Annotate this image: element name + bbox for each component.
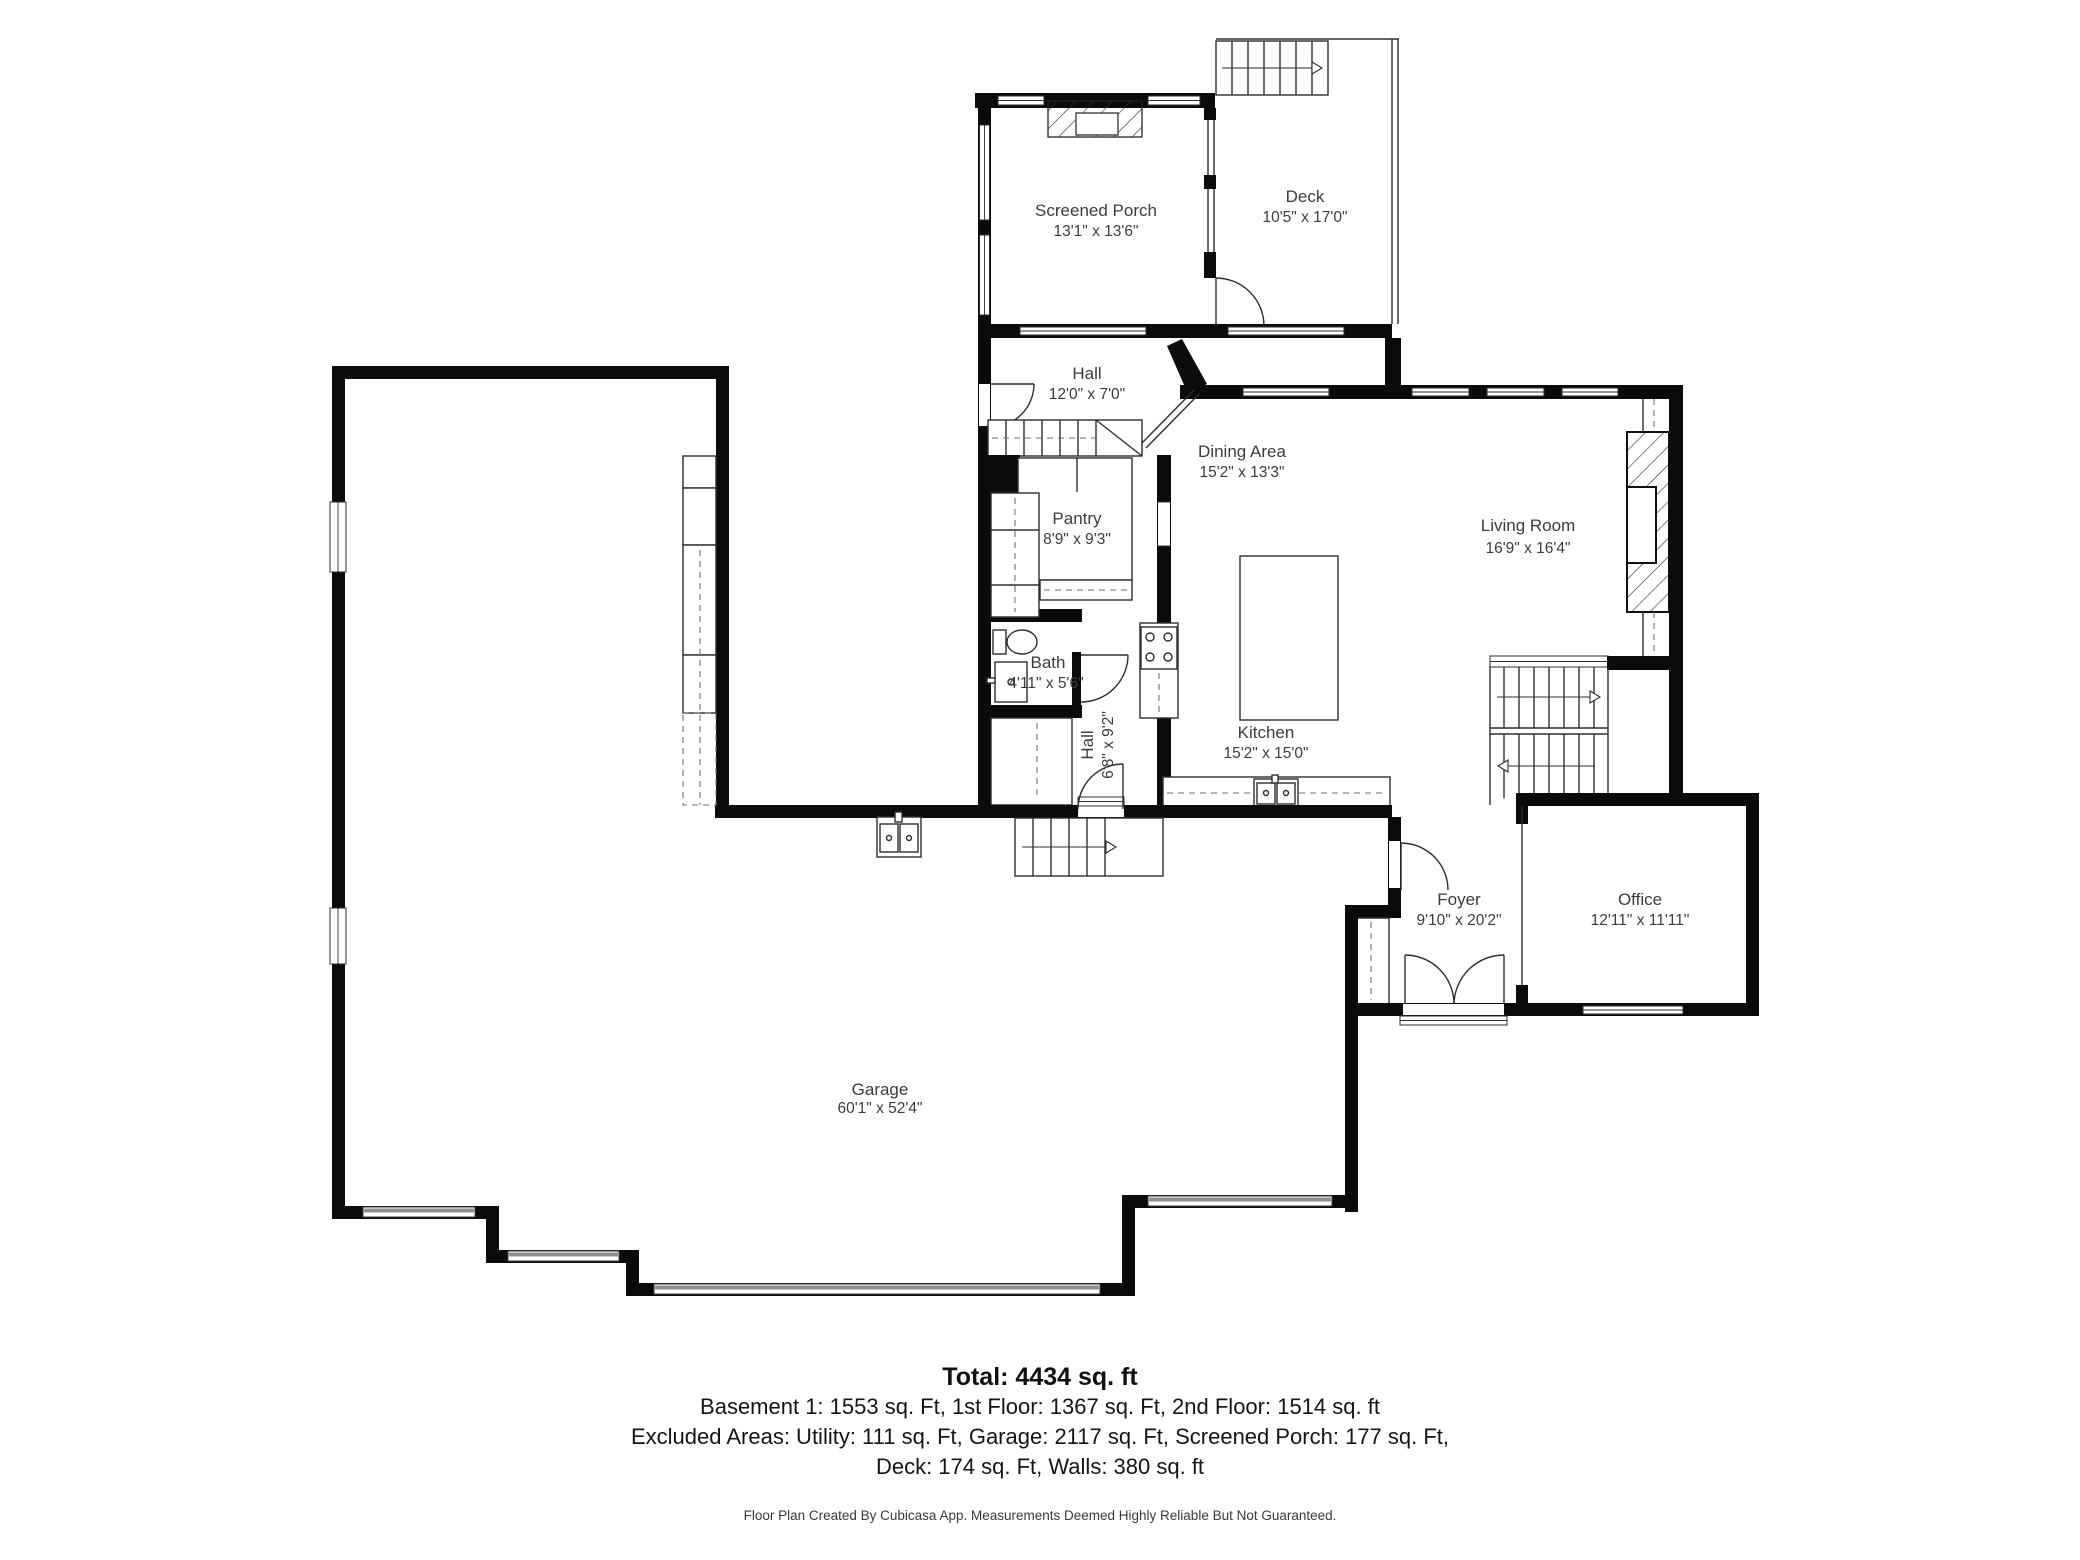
room-dims-garage: 60'1" x 52'4"	[837, 1100, 922, 1117]
room-dims-dining-area: 15'2" x 13'3"	[1199, 464, 1284, 481]
deck-door	[1216, 278, 1264, 326]
excluded-areas-text-line2: Deck: 174 sq. Ft, Walls: 380 sq. ft	[0, 1452, 2080, 1482]
deck-walls	[1216, 39, 1399, 326]
garage-stairs	[1015, 818, 1163, 876]
room-label-dining-area: Dining Area	[1198, 442, 1286, 461]
floor-plan-page: Screened Porch 13'1" x 13'6" Deck 10'5" …	[0, 0, 2080, 1560]
room-dims-deck: 10'5" x 17'0"	[1262, 209, 1347, 226]
garage-walls	[330, 366, 1392, 1296]
garage-door-3	[654, 1284, 1100, 1294]
room-label-pantry: Pantry	[1052, 509, 1102, 528]
kitchen-sink-icon	[1254, 775, 1298, 808]
foyer-closet	[1358, 918, 1389, 1003]
room-label-office: Office	[1618, 890, 1662, 909]
garage-door-1	[363, 1207, 475, 1217]
room-label-garage: Garage	[852, 1080, 909, 1099]
entry-double-door	[1405, 955, 1504, 1004]
total-area-text: Total: 4434 sq. ft	[0, 1362, 2080, 1392]
excluded-areas-text-line1: Excluded Areas: Utility: 111 sq. Ft, Gar…	[0, 1422, 2080, 1452]
toilet-icon	[993, 630, 1037, 654]
stove-icon	[1141, 627, 1177, 669]
room-label-hall-lower: Hall	[1078, 730, 1097, 759]
bath-door	[1081, 655, 1128, 702]
room-dims-office: 12'11" x 11'11"	[1591, 912, 1690, 929]
room-dims-hall-lower: 6'8" x 9'2"	[1100, 711, 1117, 779]
room-dims-screened-porch: 13'1" x 13'6"	[1053, 223, 1138, 240]
room-label-deck: Deck	[1286, 187, 1325, 206]
garage-door-2	[508, 1251, 619, 1261]
room-label-kitchen: Kitchen	[1238, 723, 1295, 742]
foyer-door	[1401, 843, 1448, 890]
room-dims-foyer: 9'10" x 20'2"	[1416, 912, 1501, 929]
area-summary: Total: 4434 sq. ft Basement 1: 1553 sq. …	[0, 1362, 2080, 1482]
room-dims-bath: 4'11" x 5'6"	[1008, 675, 1083, 692]
disclaimer-text: Floor Plan Created By Cubicasa App. Meas…	[0, 1508, 2080, 1523]
room-label-hall-upper: Hall	[1072, 364, 1101, 383]
garage-cabinets	[683, 456, 716, 805]
kitchen-fixtures	[1140, 556, 1390, 809]
deck-stairs	[1216, 41, 1328, 95]
room-dims-hall-upper: 12'0" x 7'0"	[1049, 386, 1125, 403]
room-dims-kitchen: 15'2" x 15'0"	[1223, 745, 1308, 762]
room-label-screened-porch: Screened Porch	[1035, 201, 1157, 220]
room-label-bath: Bath	[1031, 653, 1066, 672]
kitchen-island	[1240, 556, 1338, 720]
garage-door-4	[1148, 1196, 1332, 1206]
hall-stairs	[988, 420, 1142, 456]
garage-utility-sink-icon	[877, 812, 921, 857]
hall-closet	[991, 718, 1072, 805]
room-dims-pantry: 8'9" x 9'3"	[1043, 531, 1111, 548]
office-foyer-walls	[1345, 793, 1759, 1212]
floor-plan-canvas: Screened Porch 13'1" x 13'6" Deck 10'5" …	[0, 0, 2080, 1560]
diagonal-wall	[1167, 339, 1207, 394]
room-label-foyer: Foyer	[1437, 890, 1481, 909]
main-exterior-walls	[1141, 338, 1683, 805]
main-staircase	[1490, 656, 1683, 805]
room-dims-living-room: 16'9" x 16'4"	[1485, 540, 1570, 557]
floor-areas-text: Basement 1: 1553 sq. Ft, 1st Floor: 1367…	[0, 1392, 2080, 1422]
room-label-living-room: Living Room	[1481, 516, 1576, 535]
fireplace	[1627, 399, 1669, 656]
